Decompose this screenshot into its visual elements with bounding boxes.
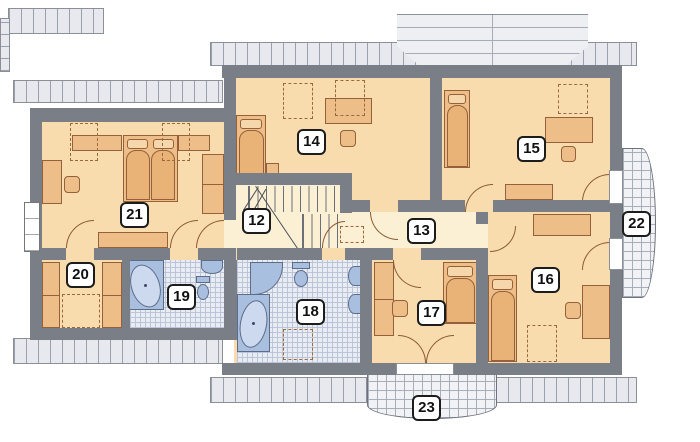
dresser (533, 214, 591, 236)
wall-segment (234, 173, 340, 185)
wall-segment (237, 248, 322, 260)
desk (545, 117, 593, 143)
eave-bottom-left (13, 338, 223, 364)
dresser (98, 232, 168, 248)
chair-outline (558, 84, 588, 114)
bed-pillow (127, 139, 148, 149)
room-label-19: 19 (167, 284, 196, 310)
washbasin (201, 260, 223, 274)
room-label-22: 22 (622, 211, 651, 237)
dashed-outline (527, 325, 557, 362)
wall-segment (30, 328, 237, 340)
bed-blanket (446, 278, 475, 323)
bed-blanket (447, 105, 468, 167)
roof-window-outline (162, 123, 190, 161)
bathtub-drain (252, 322, 255, 325)
wall-segment (476, 252, 488, 375)
toilet-tank (292, 262, 310, 269)
stool (340, 130, 356, 147)
roof-window-outline (70, 123, 98, 161)
wall-segment (430, 78, 442, 212)
room-label-23: 23 (412, 395, 441, 421)
stool (565, 302, 581, 319)
wall-segment (30, 108, 233, 122)
wall-segment (493, 200, 610, 212)
bed-pillow (492, 279, 513, 290)
stool (392, 300, 408, 317)
wardrobe (374, 262, 394, 336)
roof-window-outline (335, 80, 365, 116)
room-label-13: 13 (407, 218, 436, 244)
single-bed (443, 262, 477, 324)
bed-blanket (491, 291, 515, 361)
bed-pillow (240, 119, 262, 129)
single-bed (236, 115, 266, 177)
window (24, 202, 40, 252)
wall-segment (398, 200, 465, 212)
stool (561, 146, 576, 162)
bed-pillow (447, 266, 473, 277)
wall-segment (122, 260, 130, 328)
floor-plan-canvas: 12 13 14 15 16 17 18 19 20 21 22 23 (0, 0, 700, 442)
wall-segment (340, 173, 352, 213)
single-bed (488, 275, 517, 362)
french-door-threshold (396, 363, 454, 375)
wardrobe (202, 154, 224, 214)
eave-left-gable (0, 18, 10, 72)
bed-pillow (448, 94, 466, 104)
wall-segment (476, 212, 488, 224)
wardrobe (42, 262, 60, 328)
eave-bottom-right (495, 377, 637, 403)
room-label-21: 21 (120, 202, 149, 228)
wall-segment (198, 248, 236, 260)
toilet-bowl (294, 270, 308, 287)
wall-segment (345, 248, 393, 260)
stool (64, 176, 80, 193)
room-label-14: 14 (297, 129, 326, 155)
toilet-bowl (197, 284, 209, 300)
wall-segment (610, 270, 622, 375)
roof-window-outline (283, 83, 313, 119)
room-label-16: 16 (531, 267, 560, 293)
eave-bottom-center (210, 377, 367, 403)
single-bed (444, 90, 470, 168)
wardrobe (102, 262, 122, 328)
wall-segment (94, 248, 170, 260)
wall-segment (421, 248, 488, 260)
desk (42, 160, 62, 204)
bathtub-drain (144, 284, 147, 287)
dresser (505, 184, 553, 200)
eave-top-left (8, 8, 104, 34)
room-label-12: 12 (242, 208, 271, 234)
wall-segment (222, 363, 396, 375)
wall-segment (352, 200, 370, 212)
desk (582, 285, 610, 339)
bed-blanket (239, 130, 264, 176)
wall-segment (360, 248, 372, 363)
bed-blanket (126, 150, 150, 200)
wall-segment (224, 65, 236, 220)
wall-segment (42, 248, 66, 260)
dashed-outline (62, 294, 100, 328)
room-label-20: 20 (66, 262, 95, 288)
eave-above-room-21 (13, 80, 223, 103)
toilet-tank (196, 276, 210, 283)
room-label-15: 15 (517, 136, 546, 162)
wall-segment (222, 65, 622, 78)
balcony-door-threshold (609, 170, 623, 204)
balcony-door-threshold (609, 238, 623, 270)
room-label-18: 18 (296, 299, 325, 325)
dashed-outline (283, 329, 313, 360)
wall-segment (610, 204, 622, 238)
roof-dormer (397, 14, 588, 66)
wall-segment (224, 260, 237, 328)
room-label-17: 17 (417, 300, 446, 326)
wall-segment (610, 65, 622, 170)
